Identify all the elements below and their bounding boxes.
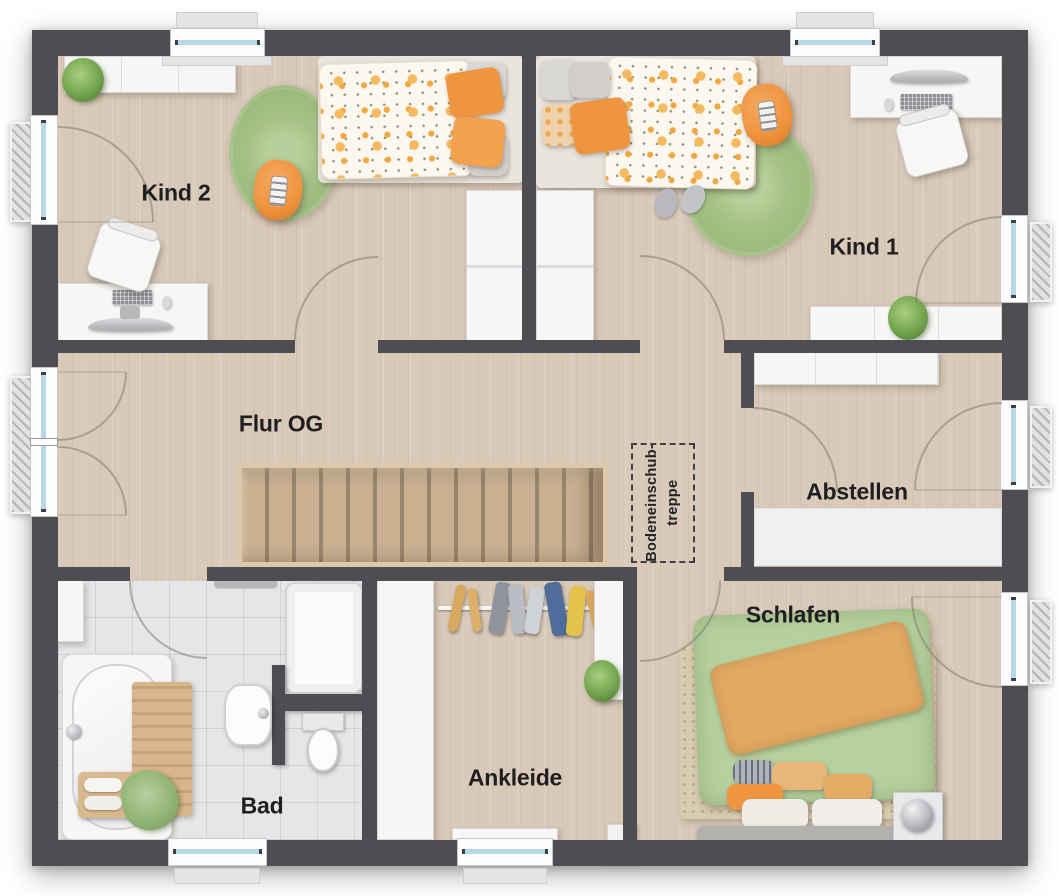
attic-hatch-label-line2: treppe xyxy=(665,480,681,526)
bath-partition-horizontal xyxy=(285,694,362,711)
window-kind2-west xyxy=(30,115,58,225)
radiator-abstellen-east xyxy=(1030,406,1052,488)
wardrobe-kind1 xyxy=(536,190,594,343)
room-label-ankleide: Ankleide xyxy=(468,765,562,792)
window-abstellen-east xyxy=(1000,400,1028,490)
monitor-kind1 xyxy=(890,70,968,83)
radiator-kind1-east xyxy=(1030,222,1052,302)
window-sill-out-kind1-top xyxy=(796,12,874,28)
window-sill-in-kind2-top xyxy=(162,56,272,66)
plant-kind2 xyxy=(62,58,104,102)
room-label-flur-og: Flur OG xyxy=(239,411,323,438)
window-mullion-flur xyxy=(30,438,58,446)
pillow-tan2-schlafen xyxy=(824,774,872,802)
towel-roll-2 xyxy=(84,796,122,810)
window-kind1-east xyxy=(1000,215,1028,303)
window-ankleide-south xyxy=(457,838,553,866)
wall-bad-ankleide xyxy=(362,581,377,840)
window-sill-out-kind2-top xyxy=(176,12,258,28)
floor-plan-upper-floor: Bodeneinschub- treppe Kind 2 Kind 1 Fl xyxy=(0,0,1058,896)
attic-hatch: Bodeneinschub- treppe xyxy=(631,443,695,563)
staircase xyxy=(237,463,608,567)
window-schlafen-east xyxy=(1000,592,1028,686)
shower xyxy=(285,582,363,694)
window-kind2-top xyxy=(170,28,265,58)
room-label-bad: Bad xyxy=(241,793,284,820)
pillow-white1-schlafen xyxy=(742,799,808,829)
room-label-schlafen: Schlafen xyxy=(746,602,840,629)
bed-kind2 xyxy=(318,56,524,183)
room-label-abstellen: Abstellen xyxy=(806,479,908,506)
room-label-kind2: Kind 2 xyxy=(141,180,210,207)
keyboard-kind2 xyxy=(112,290,152,305)
window-sill-in-kind1-top xyxy=(782,56,888,66)
plant-kind1 xyxy=(888,296,928,340)
mouse-kind2 xyxy=(162,296,171,309)
wall-h2-right xyxy=(724,567,1002,581)
window-flur-west xyxy=(30,367,58,517)
pillow-white2-schlafen xyxy=(812,799,882,829)
pillow-striped-schlafen xyxy=(733,760,775,784)
monitor-kind2 xyxy=(88,318,173,331)
bed-kind1 xyxy=(536,56,756,188)
wall-abstellen-lower xyxy=(741,492,754,567)
mouse-kind1 xyxy=(884,98,893,111)
tall-cabinet-ankleide xyxy=(377,578,434,840)
window-sill-out-ankleide xyxy=(463,868,547,884)
wall-kids-divider xyxy=(522,56,536,340)
wardrobe-kind2 xyxy=(466,190,523,343)
wall-abstellen-upper xyxy=(741,353,754,408)
wall-ankleide-schlafen xyxy=(623,567,637,840)
cabinet-abstellen xyxy=(754,352,939,385)
radiator-schlafen-east xyxy=(1030,600,1052,684)
window-kind1-top xyxy=(790,28,880,58)
lamp-schlafen xyxy=(901,799,933,831)
toilet-bowl xyxy=(307,728,339,772)
washbasin-faucet xyxy=(258,708,269,719)
plant-ankleide xyxy=(584,660,620,702)
bathtub-faucet xyxy=(66,724,81,739)
bath-partition-vertical xyxy=(272,665,285,765)
wall-h1-right xyxy=(724,340,1002,353)
room-label-kind1: Kind 1 xyxy=(829,234,898,261)
wall-h2-bad-left xyxy=(58,567,130,581)
wall-h2-mid xyxy=(207,567,623,581)
window-sill-out-bad xyxy=(174,868,260,884)
window-bad-south xyxy=(168,838,267,866)
wall-h1-left xyxy=(58,340,295,353)
wall-h1-mid xyxy=(378,340,640,353)
shelf-abstellen xyxy=(754,508,1002,566)
attic-hatch-label-line1: Bodeneinschub- xyxy=(644,444,660,562)
towel-roll-1 xyxy=(84,778,122,792)
monitor-stand-kind2 xyxy=(120,306,140,319)
